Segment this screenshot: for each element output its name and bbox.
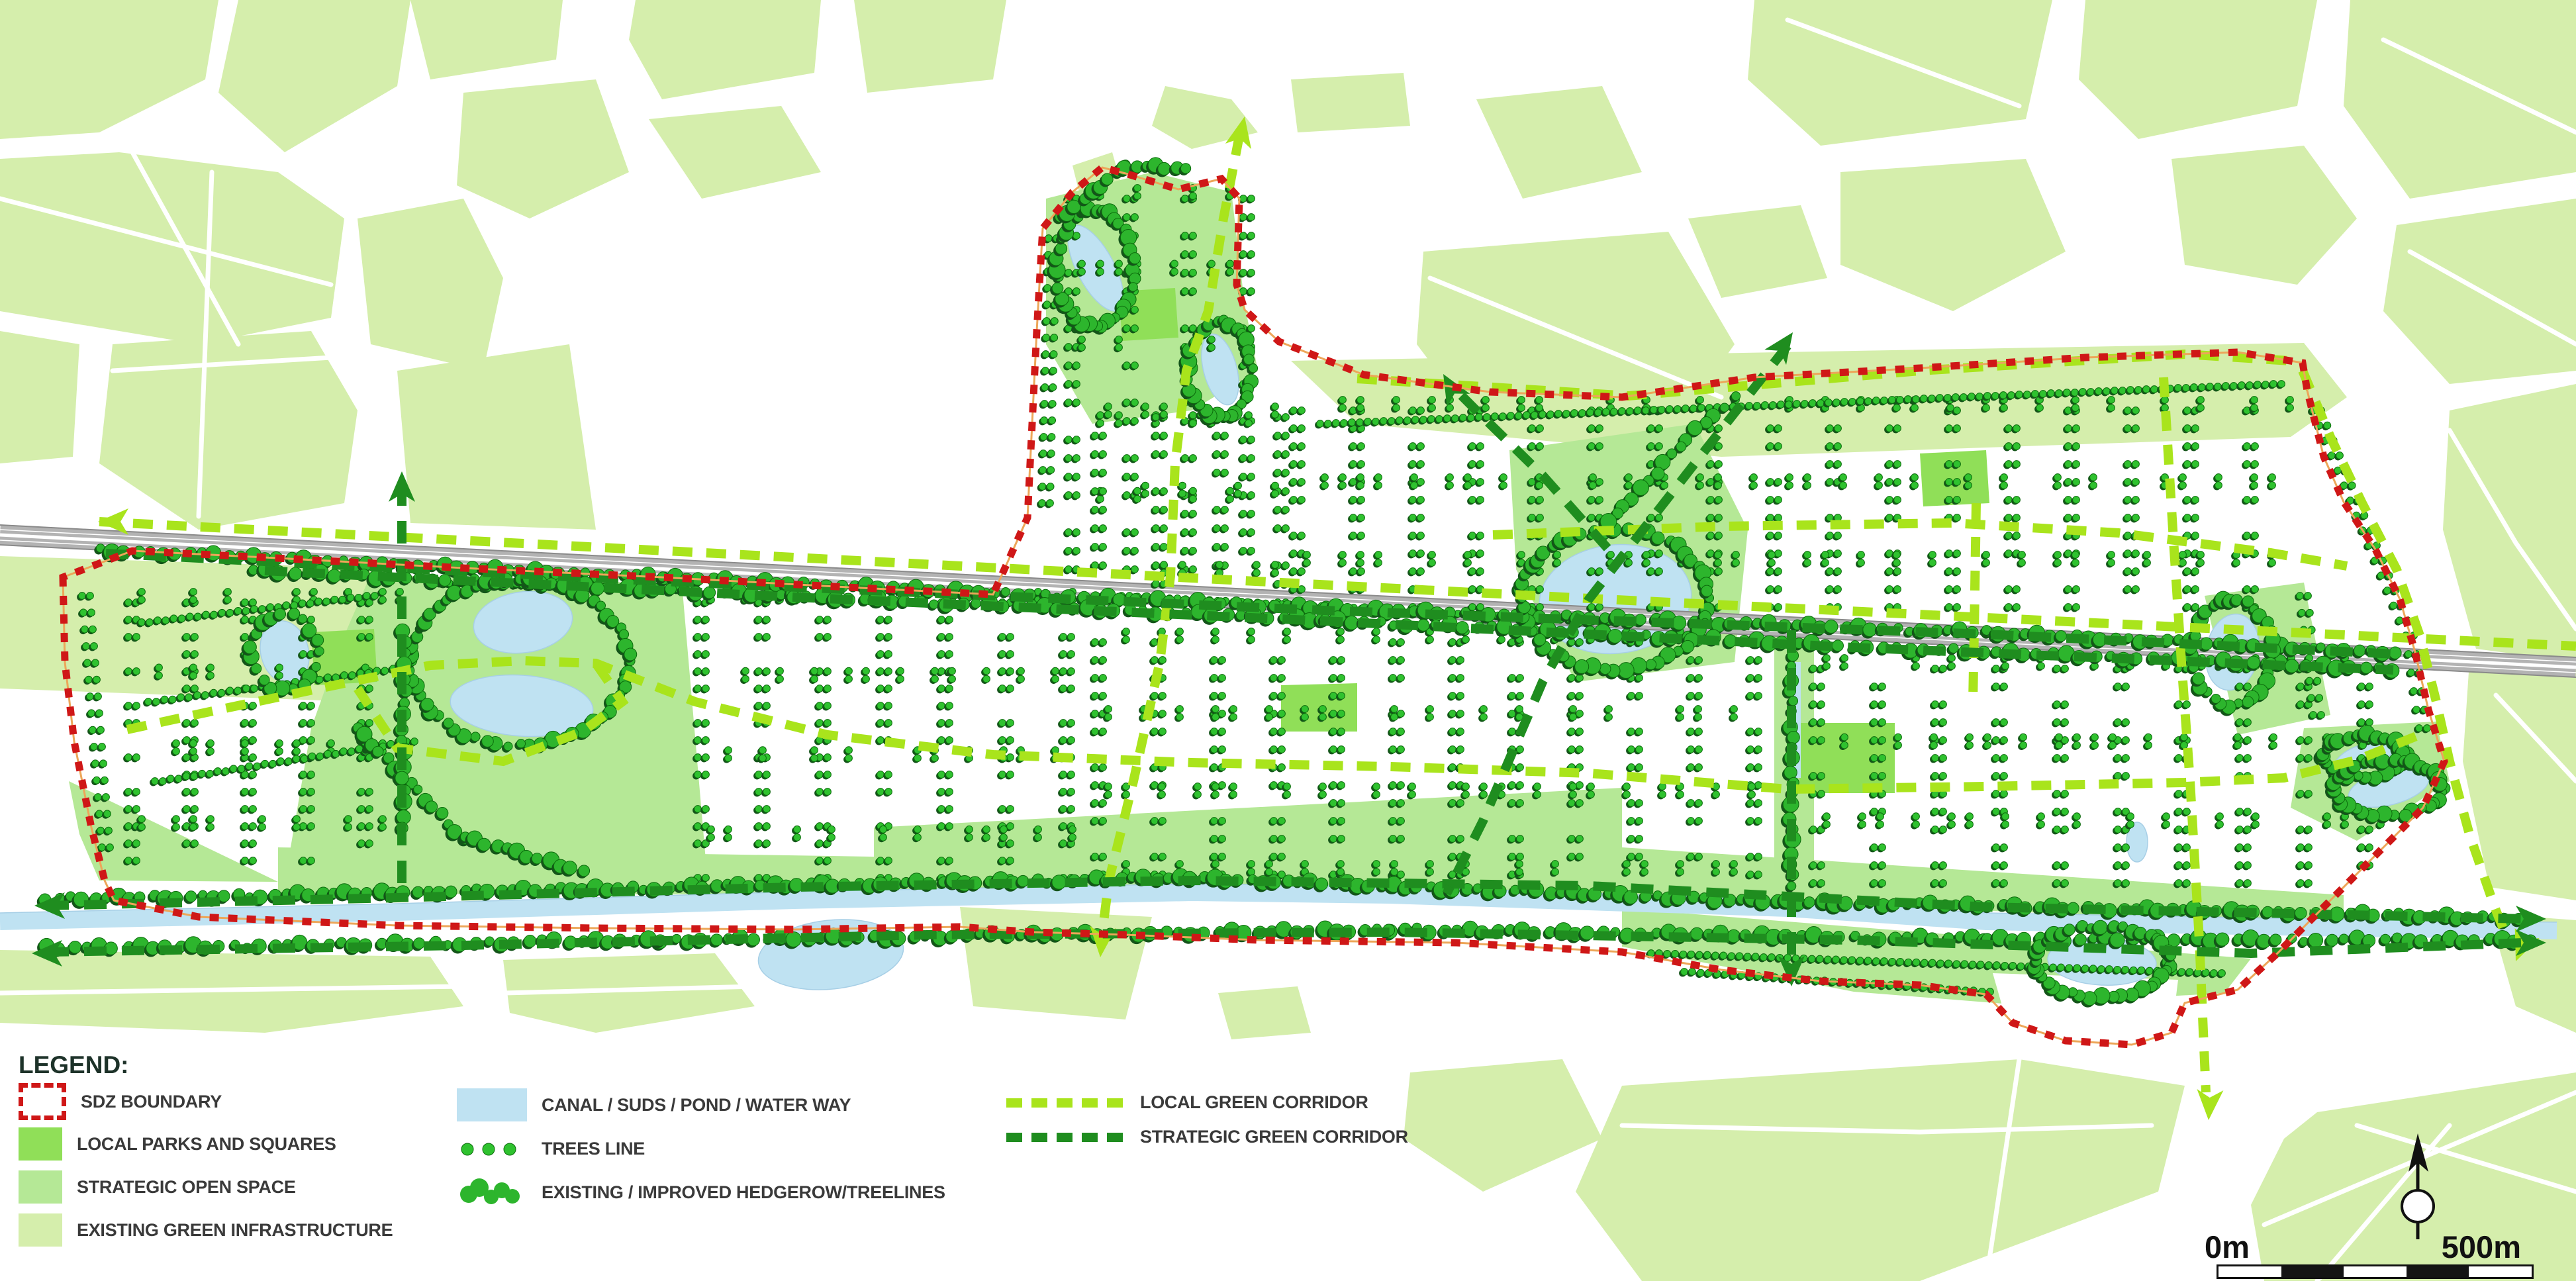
legend-item: TREES LINE: [457, 1139, 645, 1159]
scale-bar-segments: [2217, 1264, 2534, 1279]
legend-item-label: STRATEGIC OPEN SPACE: [77, 1177, 296, 1198]
scale-bar-segment: [2281, 1266, 2344, 1277]
legend-item: SDZ BOUNDARY: [19, 1083, 222, 1120]
legend: LEGEND: SDZ BOUNDARYLOCAL PARKS AND SQUA…: [19, 1051, 1561, 1079]
trees-line-icon: [457, 1139, 527, 1159]
scale-bar-segment: [2344, 1266, 2407, 1277]
hedgerow-icon: [457, 1177, 527, 1208]
water-swatch: [457, 1088, 527, 1121]
legend-item-label: LOCAL PARKS AND SQUARES: [77, 1134, 336, 1155]
legend-title: LEGEND:: [19, 1051, 1561, 1079]
legend-item-label: TREES LINE: [542, 1139, 645, 1159]
local-green-corridor-icon: [1006, 1096, 1125, 1110]
legend-item: EXISTING / IMPROVED HEDGEROW/TREELINES: [457, 1177, 945, 1208]
legend-item: LOCAL PARKS AND SQUARES: [19, 1127, 336, 1161]
strategic-green-corridor-icon: [1006, 1131, 1125, 1144]
strategic_open_space-swatch: [19, 1170, 62, 1204]
legend-item: EXISTING GREEN INFRASTRUCTURE: [19, 1213, 393, 1247]
masterplan-canvas: LEGEND: SDZ BOUNDARYLOCAL PARKS AND SQUA…: [0, 0, 2576, 1281]
legend-item-label: CANAL / SUDS / POND / WATER WAY: [542, 1095, 851, 1115]
existing_green_infrastructure-swatch: [19, 1213, 62, 1247]
scale-bar: 0m 500m: [2205, 1229, 2536, 1279]
legend-item-label: EXISTING GREEN INFRASTRUCTURE: [77, 1220, 393, 1241]
legend-item: STRATEGIC GREEN CORRIDOR: [1006, 1127, 1408, 1147]
legend-item-label: LOCAL GREEN CORRIDOR: [1140, 1092, 1368, 1113]
legend-item-label: EXISTING / IMPROVED HEDGEROW/TREELINES: [542, 1182, 945, 1203]
legend-item: STRATEGIC OPEN SPACE: [19, 1170, 296, 1204]
scale-bar-segment: [2469, 1266, 2532, 1277]
local_parks_and_squares-swatch: [19, 1127, 62, 1161]
scale-bar-segment: [2407, 1266, 2469, 1277]
legend-item-label: STRATEGIC GREEN CORRIDOR: [1140, 1127, 1408, 1147]
green-infrastructure-map: [0, 0, 2576, 1281]
legend-item-label: SDZ BOUNDARY: [81, 1092, 222, 1112]
scale-label-left: 0m: [2205, 1229, 2250, 1265]
scale-bar-segment: [2218, 1266, 2281, 1277]
sdz-boundary-swatch: [19, 1083, 66, 1120]
legend-item: CANAL / SUDS / POND / WATER WAY: [457, 1088, 851, 1121]
scale-label-right: 500m: [2442, 1229, 2521, 1265]
legend-item: LOCAL GREEN CORRIDOR: [1006, 1092, 1368, 1113]
